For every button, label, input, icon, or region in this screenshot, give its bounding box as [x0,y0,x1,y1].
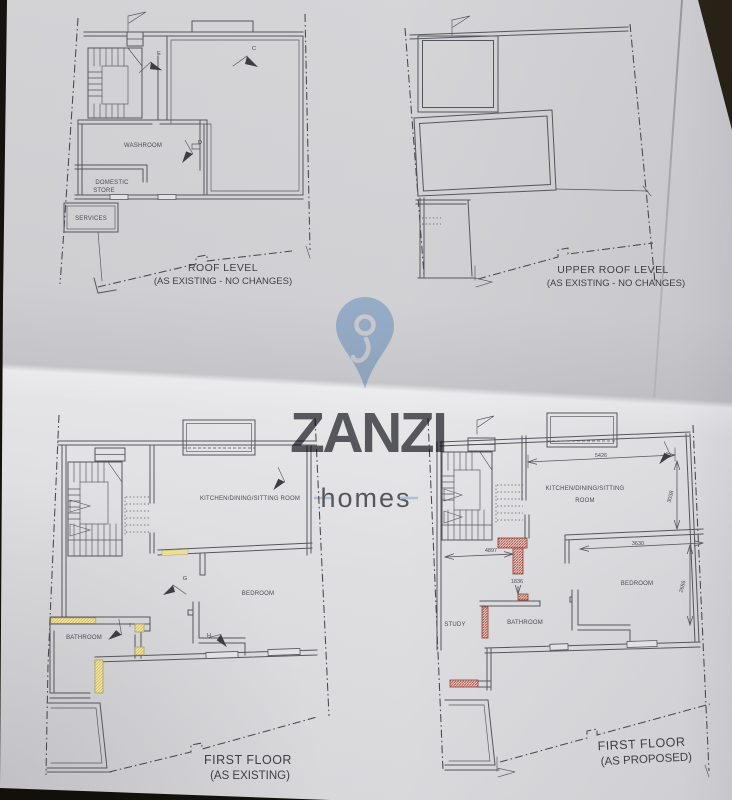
room-label-bedroom: BEDROOM [621,581,653,587]
paper-sheet: C E D WASHROOM DOMESTIC STORE SERVICES R… [0,0,732,800]
camera-letter-c: C [252,46,256,52]
site-boundary [60,14,310,293]
camera-letter-e: E [157,51,161,57]
watermark-tagline: homes [320,483,411,513]
room-label-bathroom: BATHROOM [507,620,543,626]
plan-subtitle-upper-roof: (AS EXISTING - NO CHANGES) [547,278,685,289]
plan-upper-roof-level: UPPER ROOF LEVEL (AS EXISTING - NO CHANG… [395,8,730,308]
camera-letter-h: H [207,633,211,639]
site-boundary [405,24,655,283]
plan-subtitle-first-proposed: (AS PROPOSED) [600,751,692,768]
new-walls-red [450,538,528,687]
plan-roof-level: C E D WASHROOM DOMESTIC STORE SERVICES R… [40,10,320,305]
stair [88,48,142,118]
plan-title-roof: ROOF LEVEL [188,262,258,274]
camera-marker [659,441,673,465]
dim-kitchen-width: 5426 [595,453,607,459]
plan-title-group: FIRST FLOOR (AS PROPOSED) [597,734,692,768]
room-label-services: SERVICES [75,216,107,222]
watermark-brand: ZANZI [290,401,452,465]
dim-bedroom-width: 3630 [632,541,644,547]
dim-kitchen-depth: 3038 [667,490,676,503]
flag-icon [452,16,470,35]
plan-title-upper-roof: UPPER ROOF LEVEL [557,264,668,276]
room-label-bedroom: BEDROOM [242,591,274,597]
roof-level-drawing: C E D WASHROOM DOMESTIC STORE SERVICES R… [40,10,320,300]
camera-marker-c [233,56,258,67]
zanzi-homes-watermark: ZANZI homes [250,285,500,520]
photographed-plan-sheet: C E D WASHROOM DOMESTIC STORE SERVICES R… [0,0,732,800]
room-label-kitchen-1: KITCHEN/DINING/SITTING [546,486,625,492]
dim-bedroom-depth: 2686 [679,580,688,593]
room-label-kitchen-2: ROOM [575,498,594,504]
camera-marker-i [108,619,127,644]
plan-title-first-existing: FIRST FLOOR [204,753,292,767]
dim-hall-width: 4897 [485,548,497,554]
flag-icon [128,12,146,32]
camera-letter-g: G [183,576,187,582]
walls [410,27,648,287]
room-label-bathroom: BATHROOM [66,635,102,641]
room-label-domestic-store-2: STORE [93,188,115,194]
balcony-hatch [183,420,255,455]
room-label-washroom: WASHROOM [124,143,162,149]
room-label-domestic-store-1: DOMESTIC [95,180,129,186]
balcony-hatch [547,413,617,447]
location-pin-icon [336,297,394,389]
roof-terrace-hatch [167,36,303,195]
stair [68,462,150,556]
upper-roof-drawing: UPPER ROOF LEVEL (AS EXISTING - NO CHANG… [395,8,730,303]
room-label-study: STUDY [444,622,465,628]
plan-subtitle-first-existing: (AS EXISTING) [210,770,290,782]
plan-title-first-proposed: FIRST FLOOR [597,735,686,754]
camera-marker-g [163,585,186,595]
dim-lobby-depth: 1836 [511,579,523,585]
camera-letter-d: D [198,140,202,146]
